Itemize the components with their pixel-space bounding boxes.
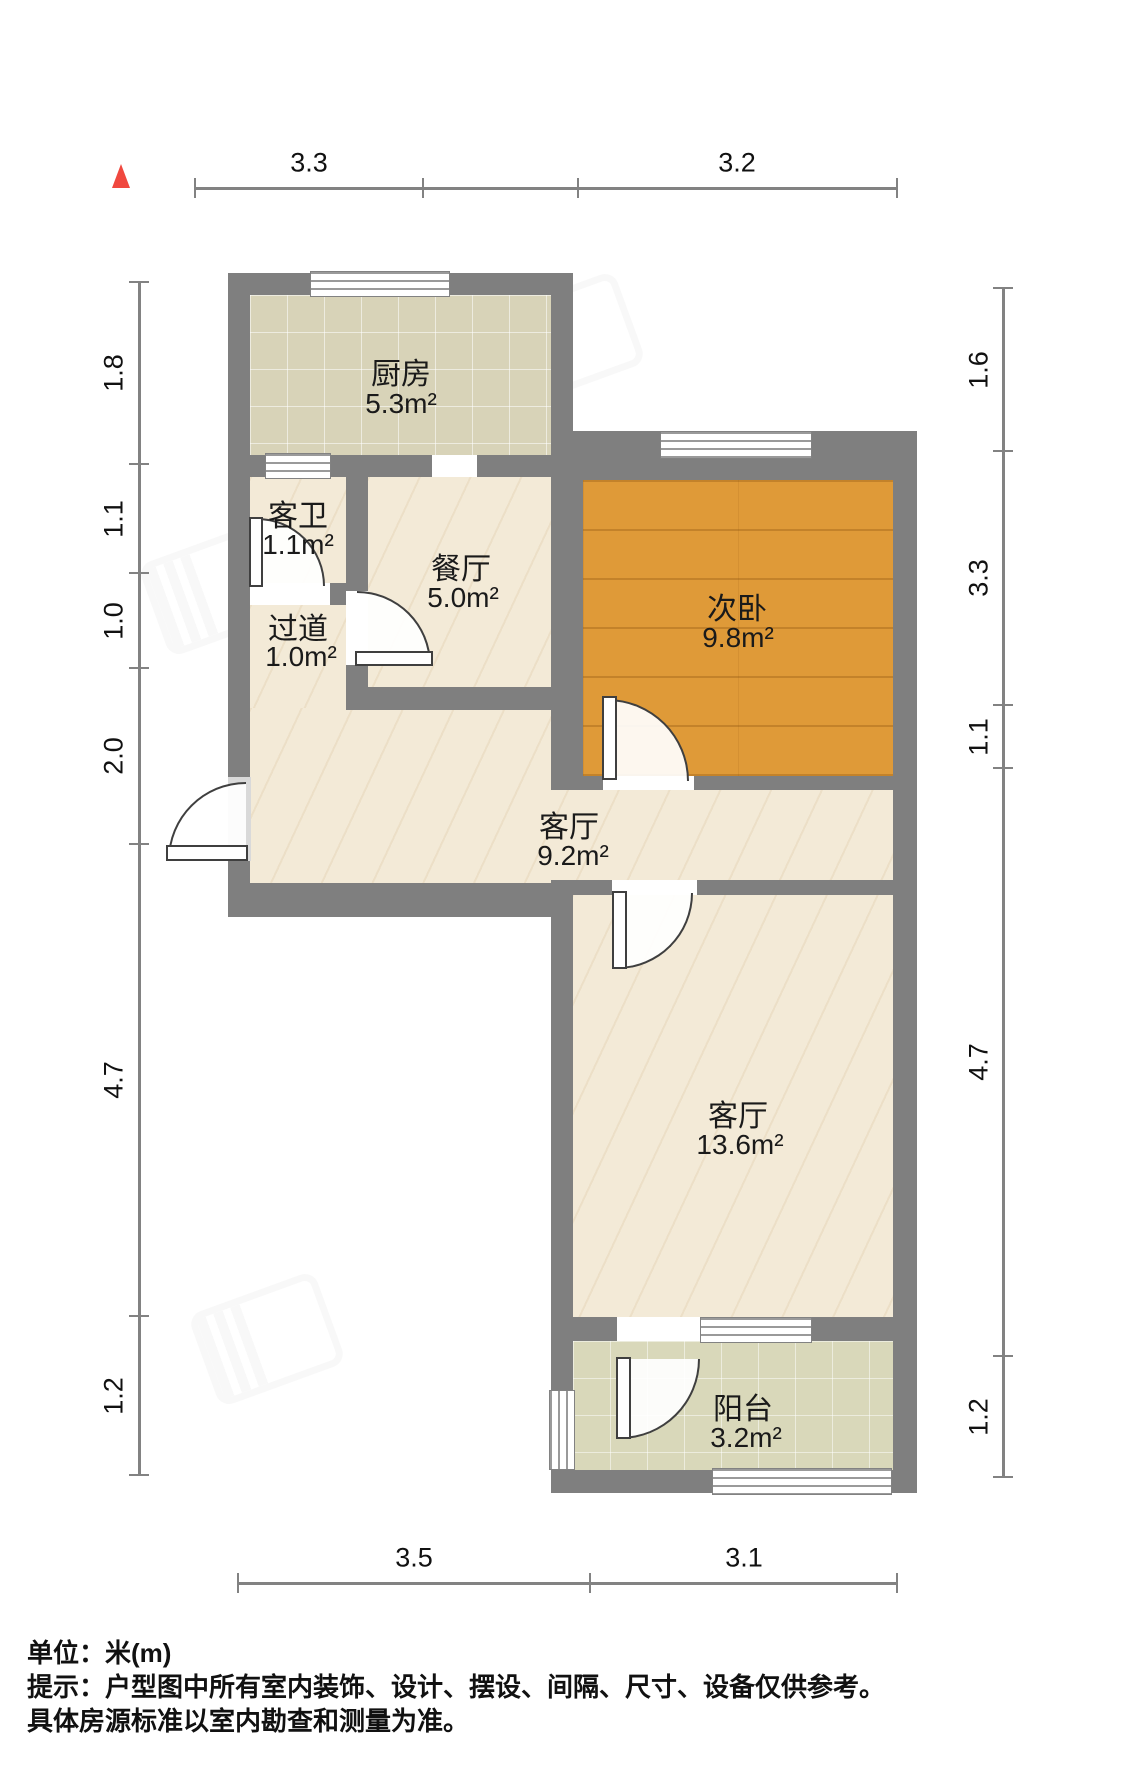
dim-label-left-6: 1.2 bbox=[99, 1377, 130, 1415]
wall bbox=[330, 583, 346, 605]
dim-label-bottom-1: 3.5 bbox=[395, 1543, 433, 1574]
living-balcony-window bbox=[700, 1317, 812, 1343]
footer-disclaimer-line1: 提示：户型图中所有室内装饰、设计、摆设、间隔、尺寸、设备仅供参考。 bbox=[27, 1667, 885, 1704]
dim-line-left bbox=[138, 282, 141, 1475]
wall bbox=[228, 273, 250, 777]
entry-door-leaf bbox=[166, 845, 248, 861]
room-area-dining: 5.0m² bbox=[427, 582, 499, 614]
wall bbox=[346, 687, 573, 710]
wall bbox=[551, 431, 583, 790]
dim-label-right-5: 1.2 bbox=[964, 1398, 995, 1436]
dim-tick bbox=[577, 178, 579, 198]
dim-tick bbox=[896, 1573, 898, 1593]
wall bbox=[551, 273, 573, 431]
dim-tick bbox=[129, 843, 149, 845]
watermark bbox=[187, 1270, 346, 1408]
dim-tick bbox=[993, 450, 1013, 452]
dim-line-top bbox=[195, 187, 898, 190]
dim-tick bbox=[129, 572, 149, 574]
footer-disclaimer-line2: 具体房源标准以室内勘查和测量为准。 bbox=[27, 1701, 469, 1738]
north-arrow-icon bbox=[112, 164, 130, 188]
bathroom-window bbox=[265, 453, 331, 479]
dim-label-bottom-2: 3.1 bbox=[725, 1543, 763, 1574]
balcony-door-leaf bbox=[616, 1357, 631, 1439]
dining-door-leaf bbox=[355, 651, 433, 666]
dim-tick bbox=[129, 1315, 149, 1317]
dim-tick bbox=[194, 178, 196, 198]
dim-tick bbox=[422, 178, 424, 198]
dim-tick bbox=[896, 178, 898, 198]
dim-label-left-2: 1.1 bbox=[99, 500, 130, 538]
dim-label-left-5: 4.7 bbox=[99, 1061, 130, 1099]
bathroom-door-leaf bbox=[249, 517, 263, 587]
dim-line-right bbox=[1002, 288, 1005, 1477]
dim-tick bbox=[129, 463, 149, 465]
room-area-hallway: 1.0m² bbox=[265, 641, 337, 673]
room-area-bathroom: 1.1m² bbox=[262, 529, 334, 561]
dim-tick bbox=[993, 287, 1013, 289]
living-door-leaf bbox=[612, 891, 627, 969]
dim-label-top-2: 3.2 bbox=[718, 148, 756, 179]
dim-label-right-4: 4.7 bbox=[964, 1043, 995, 1081]
room-area-living-lower: 13.6m² bbox=[696, 1129, 783, 1161]
dim-tick bbox=[589, 1573, 591, 1593]
dim-tick bbox=[993, 704, 1013, 706]
balcony-side-window bbox=[549, 1390, 575, 1470]
room-area-balcony: 3.2m² bbox=[710, 1422, 782, 1454]
wall bbox=[810, 1317, 917, 1341]
footer-unit-note: 单位：米(m) bbox=[27, 1633, 171, 1670]
wall bbox=[346, 455, 368, 591]
bedroom-door-leaf bbox=[602, 696, 617, 780]
room-area-kitchen: 5.3m² bbox=[365, 388, 437, 420]
dim-label-right-3: 1.1 bbox=[964, 718, 995, 756]
dim-line-bottom bbox=[238, 1582, 898, 1585]
room-area-living-mid: 9.2m² bbox=[537, 840, 609, 872]
wall bbox=[228, 883, 573, 917]
dim-label-left-4: 2.0 bbox=[99, 737, 130, 775]
dim-tick bbox=[129, 281, 149, 283]
bedroom-window bbox=[660, 431, 812, 459]
room-area-bedroom: 9.8m² bbox=[702, 622, 774, 654]
dim-label-right-2: 3.3 bbox=[964, 559, 995, 597]
dim-tick bbox=[993, 767, 1013, 769]
room-label-kitchen: 厨房 bbox=[371, 349, 431, 393]
kitchen-window bbox=[310, 271, 450, 297]
dim-label-left-3: 1.0 bbox=[99, 602, 130, 640]
dim-label-top-1: 3.3 bbox=[290, 148, 328, 179]
balcony-bottom-window bbox=[712, 1468, 892, 1495]
dim-tick bbox=[237, 1573, 239, 1593]
dim-tick bbox=[129, 667, 149, 669]
balcony-door-opening bbox=[617, 1317, 700, 1341]
wall bbox=[477, 455, 551, 477]
dim-label-right-1: 1.6 bbox=[964, 351, 995, 389]
dim-tick bbox=[993, 1476, 1013, 1478]
dim-tick bbox=[129, 1474, 149, 1476]
floor-plan-canvas: 厨房 5.3m² 客卫 1.1m² 餐厅 5.0m² 过道 1.0m² 次卧 9… bbox=[0, 0, 1144, 1772]
wall bbox=[551, 776, 603, 790]
dim-label-left-1: 1.8 bbox=[99, 354, 130, 392]
dim-tick bbox=[993, 1355, 1013, 1357]
wall bbox=[228, 583, 250, 605]
wall bbox=[697, 880, 917, 895]
wall bbox=[694, 776, 917, 790]
wall bbox=[573, 1317, 617, 1341]
